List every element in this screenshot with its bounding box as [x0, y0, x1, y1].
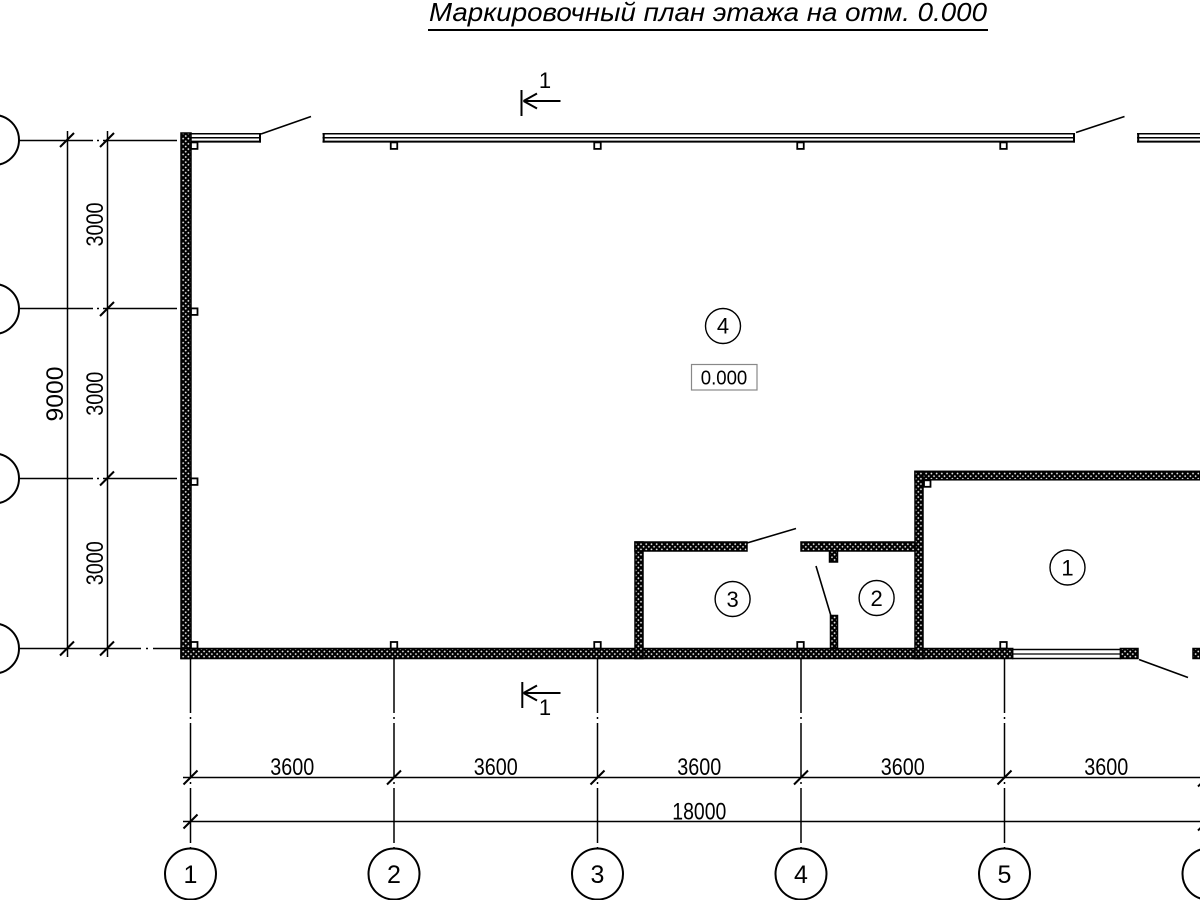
svg-text:1: 1 [1061, 556, 1073, 581]
svg-text:3: 3 [591, 861, 605, 889]
svg-text:1: 1 [184, 861, 198, 889]
svg-text:3600: 3600 [1084, 754, 1128, 781]
svg-text:1: 1 [539, 68, 551, 93]
svg-text:3600: 3600 [270, 754, 314, 781]
svg-text:2: 2 [387, 861, 401, 889]
svg-text:5: 5 [998, 861, 1012, 889]
svg-text:3: 3 [726, 587, 738, 612]
svg-text:4: 4 [717, 314, 729, 339]
svg-text:18000: 18000 [672, 799, 726, 826]
svg-text:9000: 9000 [42, 367, 69, 422]
svg-text:3600: 3600 [474, 754, 518, 781]
svg-text:3600: 3600 [881, 754, 925, 781]
svg-text:3000: 3000 [82, 372, 109, 416]
svg-text:3000: 3000 [82, 541, 109, 585]
svg-text:3600: 3600 [677, 754, 721, 781]
svg-text:3000: 3000 [82, 203, 109, 247]
svg-text:4: 4 [794, 861, 808, 889]
svg-text:0.000: 0.000 [701, 368, 748, 390]
svg-text:1: 1 [539, 695, 551, 720]
svg-text:2: 2 [870, 586, 882, 611]
svg-text:Маркировочный план этажа на от: Маркировочный план этажа на отм. 0.000 [429, 0, 988, 27]
